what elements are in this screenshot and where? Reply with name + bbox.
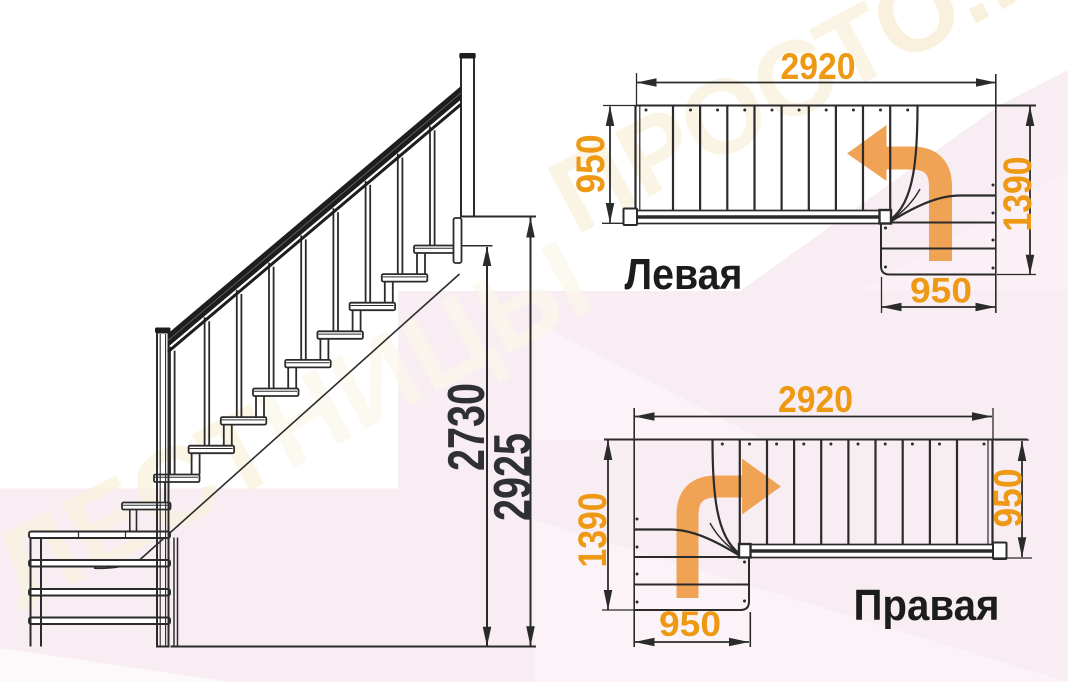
svg-text:2920: 2920 bbox=[778, 379, 853, 420]
svg-text:2925: 2925 bbox=[484, 433, 542, 521]
svg-text:Левая: Левая bbox=[625, 250, 743, 299]
svg-text:2920: 2920 bbox=[781, 46, 856, 87]
svg-text:950: 950 bbox=[987, 469, 1031, 528]
svg-text:950: 950 bbox=[659, 605, 721, 644]
svg-text:1390: 1390 bbox=[571, 493, 615, 568]
svg-text:950: 950 bbox=[569, 135, 613, 194]
svg-text:950: 950 bbox=[910, 272, 972, 311]
svg-text:1390: 1390 bbox=[996, 157, 1040, 232]
svg-text:Правая: Правая bbox=[854, 581, 1000, 630]
